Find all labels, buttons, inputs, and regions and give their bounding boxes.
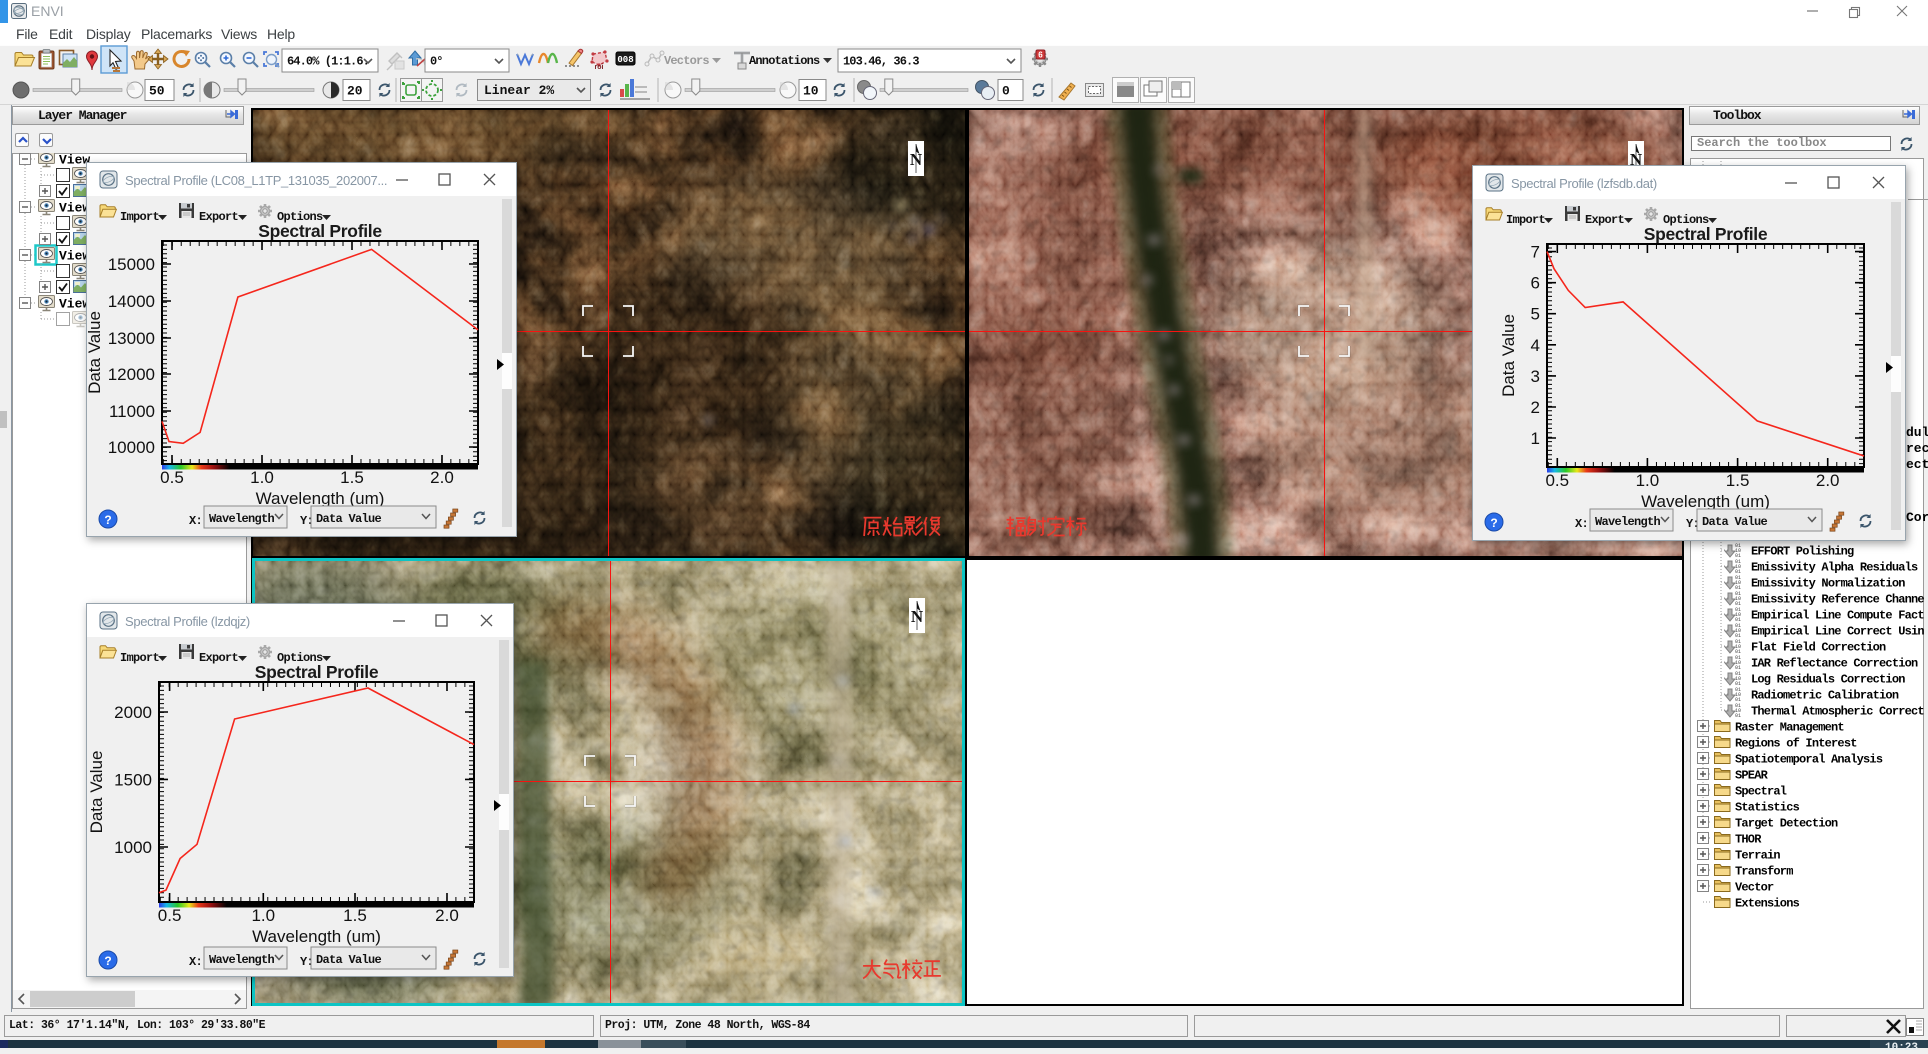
svg-text:0: 0 [1002, 84, 1010, 99]
svg-text:Data Value: Data Value [1702, 515, 1768, 529]
svg-text:Import: Import [120, 210, 160, 224]
svg-text:Spectral Profile: Spectral Profile [255, 662, 379, 682]
svg-text:Linear 2%: Linear 2% [484, 83, 554, 98]
svg-text:1.5: 1.5 [1726, 471, 1750, 490]
svg-text:64.0% (1:1.6.: 64.0% (1:1.6. [287, 55, 369, 69]
svg-text:2.0: 2.0 [1816, 471, 1840, 490]
svg-text:X:: X: [189, 955, 202, 969]
svg-text:50: 50 [149, 84, 165, 99]
svg-text:Spectral: Spectral [1735, 785, 1787, 799]
svg-text:14000: 14000 [108, 292, 155, 311]
svg-text:Regions of Interest: Regions of Interest [1735, 737, 1857, 751]
svg-text:Radiometric Calibration: Radiometric Calibration [1751, 689, 1899, 703]
svg-text:Empirical Line Correct Using: Empirical Line Correct Using [1751, 625, 1924, 639]
svg-text:THOR: THOR [1735, 833, 1762, 847]
svg-text:0.5: 0.5 [158, 906, 182, 925]
svg-text:1.0: 1.0 [1636, 471, 1660, 490]
svg-text:1: 1 [1531, 429, 1540, 448]
svg-text:Vector: Vector [1735, 881, 1774, 895]
svg-text:11000: 11000 [109, 402, 155, 421]
svg-text:Vectors: Vectors [664, 54, 709, 68]
svg-text:Spectral Profile (LC08_L1TP_13: Spectral Profile (LC08_L1TP_131035_20200… [125, 173, 387, 188]
svg-text:Flat Field Correction: Flat Field Correction [1751, 641, 1886, 655]
svg-text:SPEAR: SPEAR [1735, 769, 1769, 783]
svg-text:4: 4 [1531, 336, 1540, 355]
svg-text:3: 3 [1531, 367, 1540, 386]
svg-text:Spatiotemporal Analysis: Spatiotemporal Analysis [1735, 753, 1883, 767]
svg-text:Wavelength: Wavelength [209, 953, 275, 967]
svg-text:Data Value: Data Value [1499, 314, 1518, 397]
svg-text:2.0: 2.0 [430, 468, 454, 487]
svg-text:Statistics: Statistics [1735, 801, 1800, 815]
svg-text:Wavelength: Wavelength [209, 512, 275, 526]
svg-text:Terrain: Terrain [1735, 849, 1780, 863]
svg-text:EFFORT Polishing: EFFORT Polishing [1751, 545, 1854, 559]
svg-text:roi: roi [595, 64, 604, 71]
svg-text:Raster Management: Raster Management [1735, 721, 1844, 735]
svg-text:Export: Export [199, 210, 239, 224]
svg-text:5: 5 [1531, 305, 1540, 324]
svg-text:Wavelength (um): Wavelength (um) [252, 927, 381, 946]
svg-text:X:: X: [189, 514, 202, 528]
svg-text:Thermal Atmospheric Correcti: Thermal Atmospheric Correcti [1751, 705, 1924, 719]
svg-text:2.0: 2.0 [435, 906, 459, 925]
svg-text:?: ? [1490, 516, 1497, 530]
svg-text:0.5: 0.5 [160, 468, 184, 487]
svg-text:0°: 0° [430, 55, 443, 69]
svg-text:1.5: 1.5 [343, 906, 367, 925]
svg-text:13000: 13000 [108, 329, 155, 348]
svg-text:1.5: 1.5 [340, 468, 364, 487]
svg-text:X:: X: [1575, 517, 1588, 531]
svg-text:Data Value: Data Value [316, 512, 382, 526]
svg-text:Spectral Profile: Spectral Profile [1644, 224, 1768, 244]
svg-text:Data Value: Data Value [316, 953, 382, 967]
svg-text:0.5: 0.5 [1545, 471, 1569, 490]
svg-text:103.46, 36.3: 103.46, 36.3 [843, 55, 919, 69]
svg-text:N: N [911, 607, 924, 626]
svg-text:1000: 1000 [114, 838, 152, 857]
svg-text:20: 20 [347, 84, 363, 99]
svg-text:Import: Import [120, 651, 160, 665]
svg-text:1.0: 1.0 [251, 906, 275, 925]
svg-text:Export: Export [199, 651, 239, 665]
svg-text:Wavelength (um): Wavelength (um) [256, 489, 385, 508]
svg-text:Target Detection: Target Detection [1735, 817, 1838, 831]
svg-text:10: 10 [803, 84, 819, 99]
svg-text:Data Value: Data Value [87, 751, 106, 834]
svg-text:Spectral Profile (lzdqjz): Spectral Profile (lzdqjz) [125, 614, 250, 629]
svg-text:Annotations: Annotations [749, 54, 820, 68]
svg-text:Emissivity Alpha Residuals: Emissivity Alpha Residuals [1751, 561, 1918, 575]
svg-text:12000: 12000 [108, 365, 155, 384]
svg-text:Import: Import [1506, 213, 1546, 227]
svg-text:6: 6 [1038, 51, 1043, 60]
svg-text:Spectral Profile: Spectral Profile [258, 221, 382, 241]
svg-text:Data Value: Data Value [87, 311, 104, 394]
svg-text:IAR Reflectance Correction: IAR Reflectance Correction [1751, 657, 1918, 671]
svg-text:Transform: Transform [1735, 865, 1793, 879]
svg-text:?: ? [104, 954, 111, 968]
svg-text:?: ? [104, 513, 111, 527]
svg-text:15000: 15000 [108, 255, 155, 274]
svg-text:Emissivity Normalization: Emissivity Normalization [1751, 577, 1905, 591]
svg-text:Export: Export [1585, 213, 1625, 227]
svg-text:Wavelength (um): Wavelength (um) [1641, 492, 1770, 511]
svg-text:1500: 1500 [114, 770, 152, 789]
svg-text:N: N [910, 150, 923, 169]
svg-text:Log Residuals Correction: Log Residuals Correction [1751, 673, 1905, 687]
svg-text:7: 7 [1531, 243, 1540, 262]
svg-text:008: 008 [617, 55, 633, 65]
svg-text:6: 6 [1531, 274, 1540, 293]
svg-text:1.0: 1.0 [250, 468, 274, 487]
svg-text:2: 2 [1531, 398, 1540, 417]
svg-text:Spectral Profile (lzfsdb.dat): Spectral Profile (lzfsdb.dat) [1511, 176, 1657, 191]
svg-text:Wavelength: Wavelength [1595, 515, 1661, 529]
svg-text:10000: 10000 [108, 438, 155, 457]
svg-text:Empirical Line Compute Facto: Empirical Line Compute Facto [1751, 609, 1924, 623]
svg-text:2000: 2000 [114, 703, 152, 722]
svg-text:Emissivity Reference Channel: Emissivity Reference Channel [1751, 593, 1924, 607]
svg-text:Extensions: Extensions [1735, 897, 1800, 911]
